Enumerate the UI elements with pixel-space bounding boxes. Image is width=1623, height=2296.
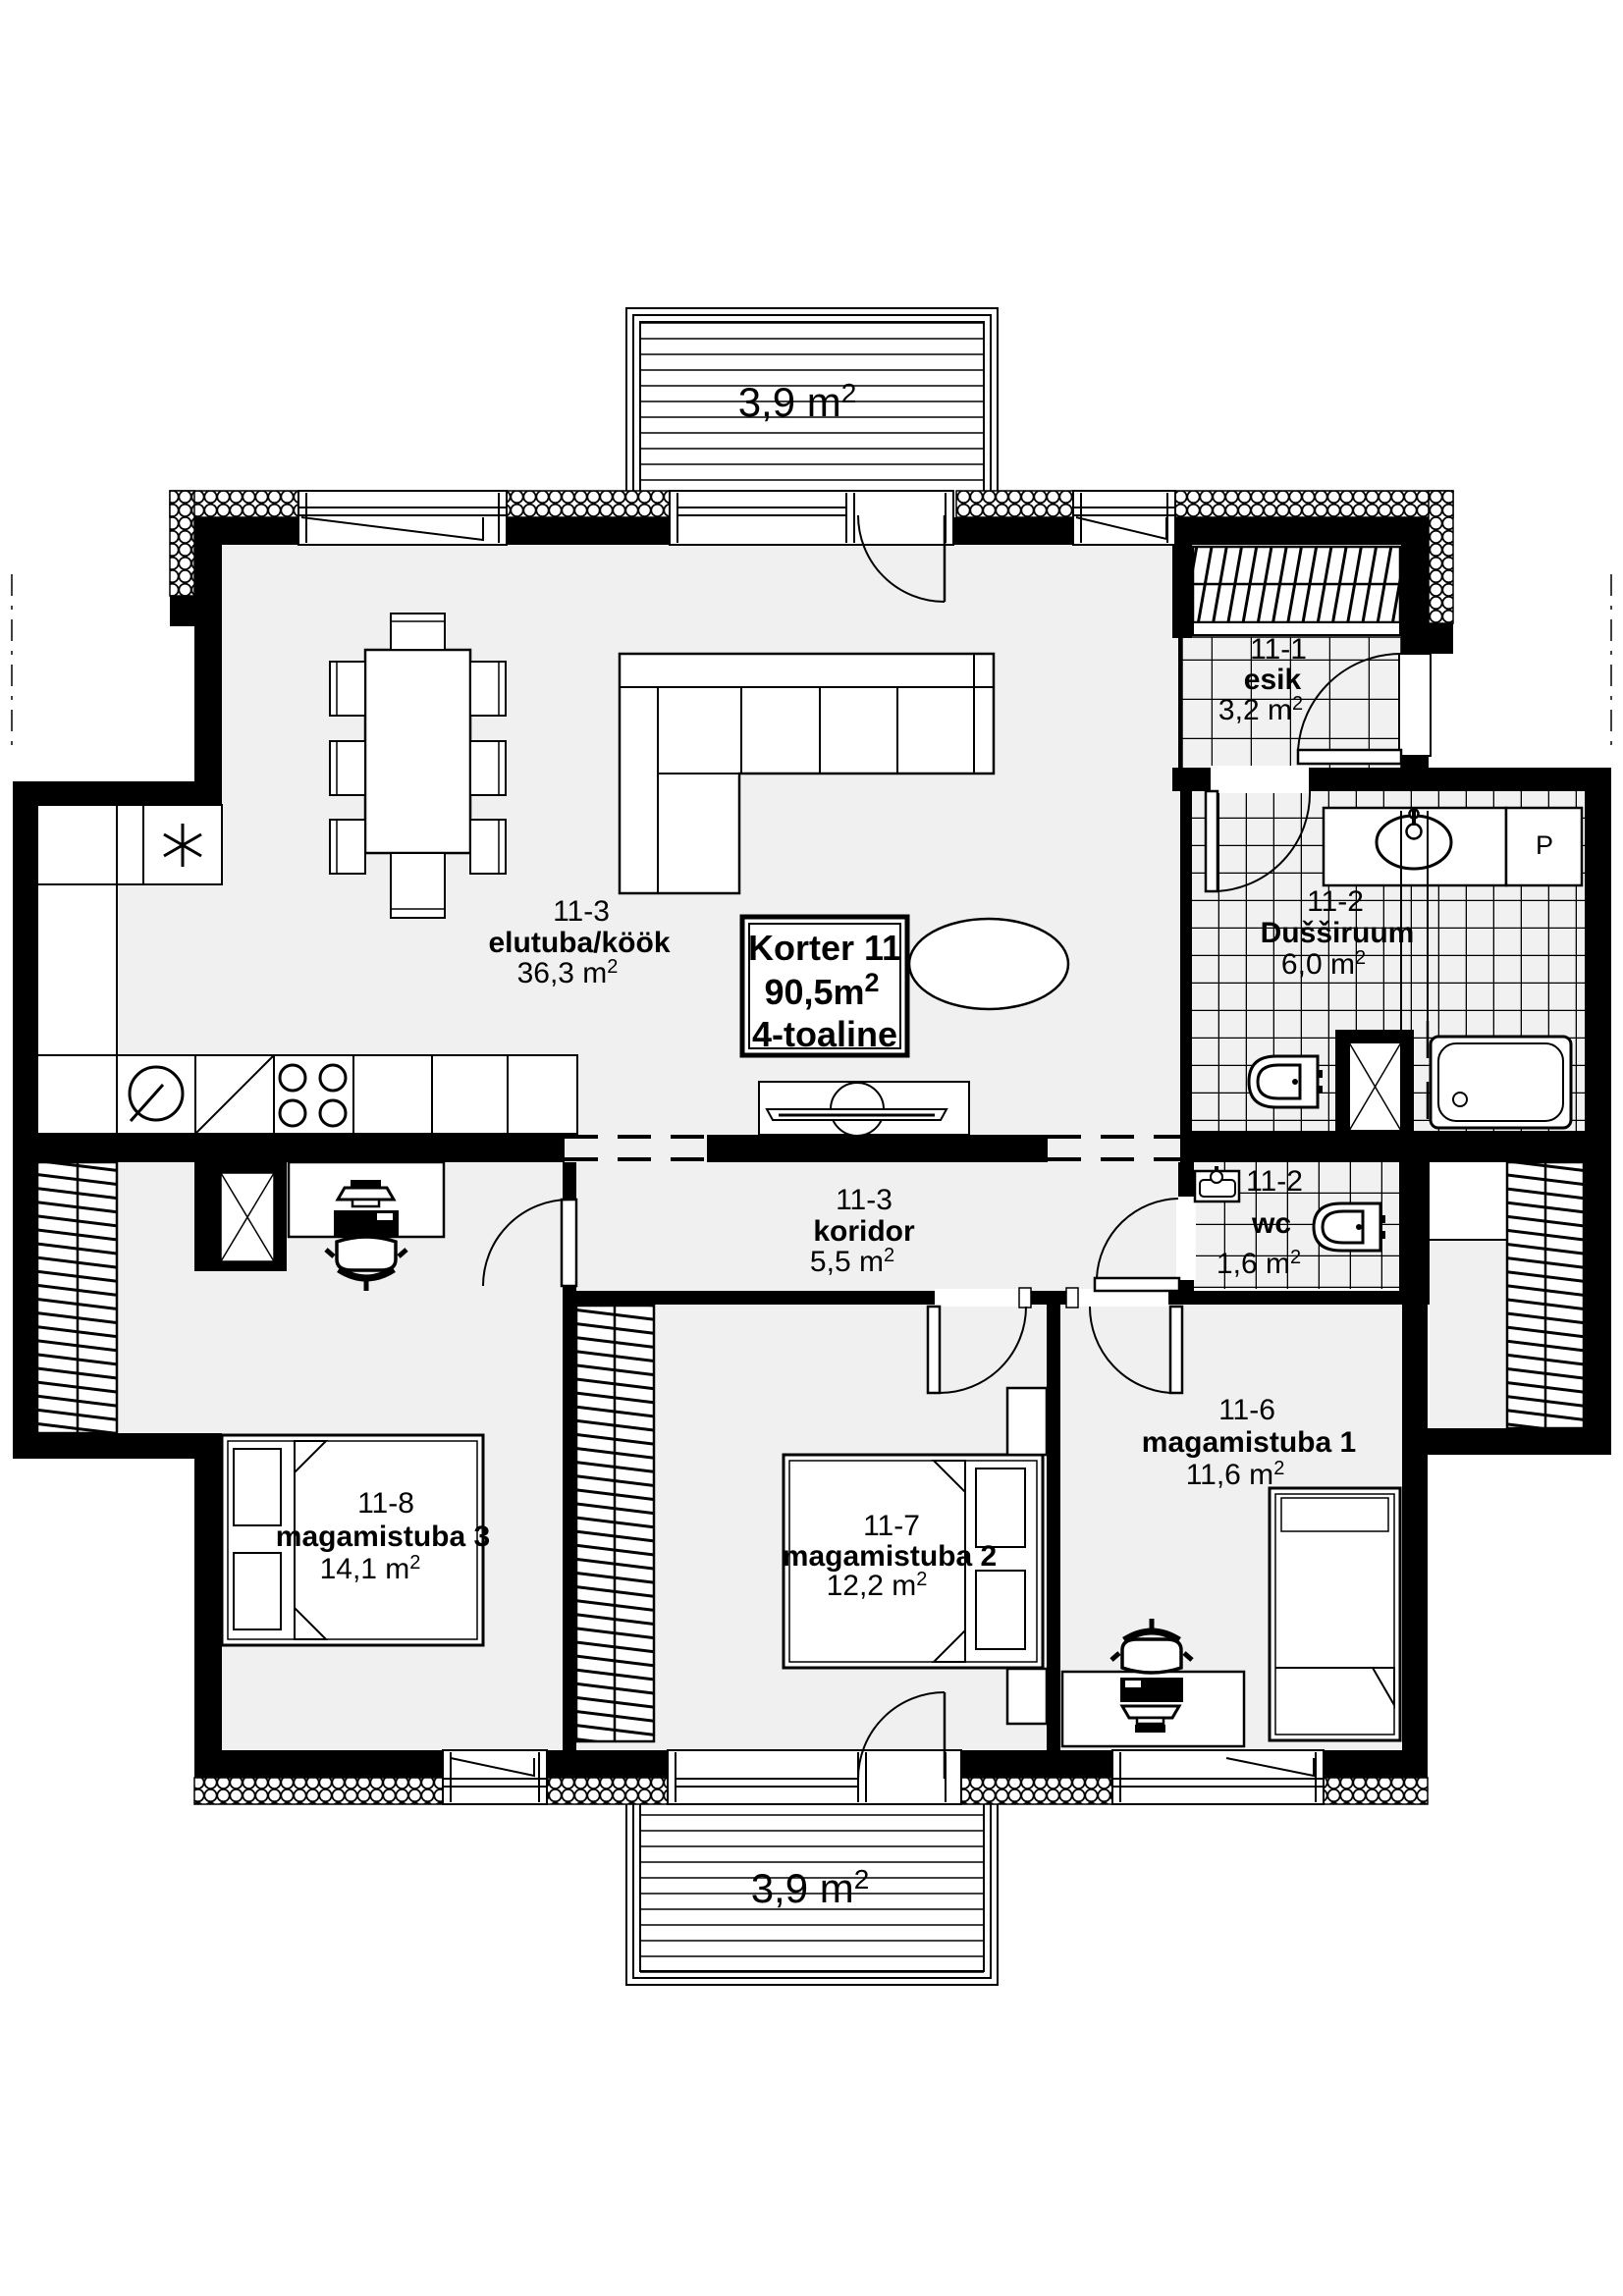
svg-text:elutuba/köök: elutuba/köök <box>488 927 670 959</box>
svg-text:magamistuba 1: magamistuba 1 <box>1142 1426 1356 1459</box>
svg-text:11-2: 11-2 <box>1246 1165 1303 1198</box>
svg-text:esik: esik <box>1244 664 1302 696</box>
svg-text:magamistuba 3: magamistuba 3 <box>276 1521 490 1553</box>
svg-text:11-6: 11-6 <box>1218 1394 1275 1426</box>
svg-text:11-1: 11-1 <box>1250 633 1307 666</box>
svg-text:90,5m2: 90,5m2 <box>764 968 879 1012</box>
svg-text:koridor: koridor <box>813 1215 915 1248</box>
svg-text:11-3: 11-3 <box>553 895 610 928</box>
svg-text:3,9 m2: 3,9 m2 <box>738 378 857 425</box>
svg-text:5,5 m2: 5,5 m2 <box>810 1245 894 1278</box>
svg-text:3,9 m2: 3,9 m2 <box>751 1864 870 1911</box>
svg-text:36,3 m2: 36,3 m2 <box>517 956 619 989</box>
svg-text:wc: wc <box>1251 1207 1291 1240</box>
svg-text:Korter 11: Korter 11 <box>748 928 901 968</box>
svg-text:4-toaline: 4-toaline <box>752 1014 897 1054</box>
svg-text:11-7: 11-7 <box>863 1510 920 1542</box>
svg-text:1,6 m2: 1,6 m2 <box>1217 1247 1301 1280</box>
svg-text:11-8: 11-8 <box>357 1487 414 1520</box>
svg-text:6,0 m2: 6,0 m2 <box>1281 947 1366 981</box>
svg-text:magamistuba 2: magamistuba 2 <box>783 1540 997 1573</box>
svg-text:11-3: 11-3 <box>836 1184 893 1216</box>
svg-text:P: P <box>1536 830 1553 860</box>
svg-text:11,6 m2: 11,6 m2 <box>1186 1458 1285 1491</box>
svg-text:14,1 m2: 14,1 m2 <box>320 1552 421 1585</box>
svg-text:Dušširuum: Dušširuum <box>1261 917 1415 949</box>
svg-text:3,2 m2: 3,2 m2 <box>1218 693 1303 726</box>
svg-text:12,2 m2: 12,2 m2 <box>827 1569 928 1602</box>
svg-text:11-2: 11-2 <box>1307 885 1364 918</box>
